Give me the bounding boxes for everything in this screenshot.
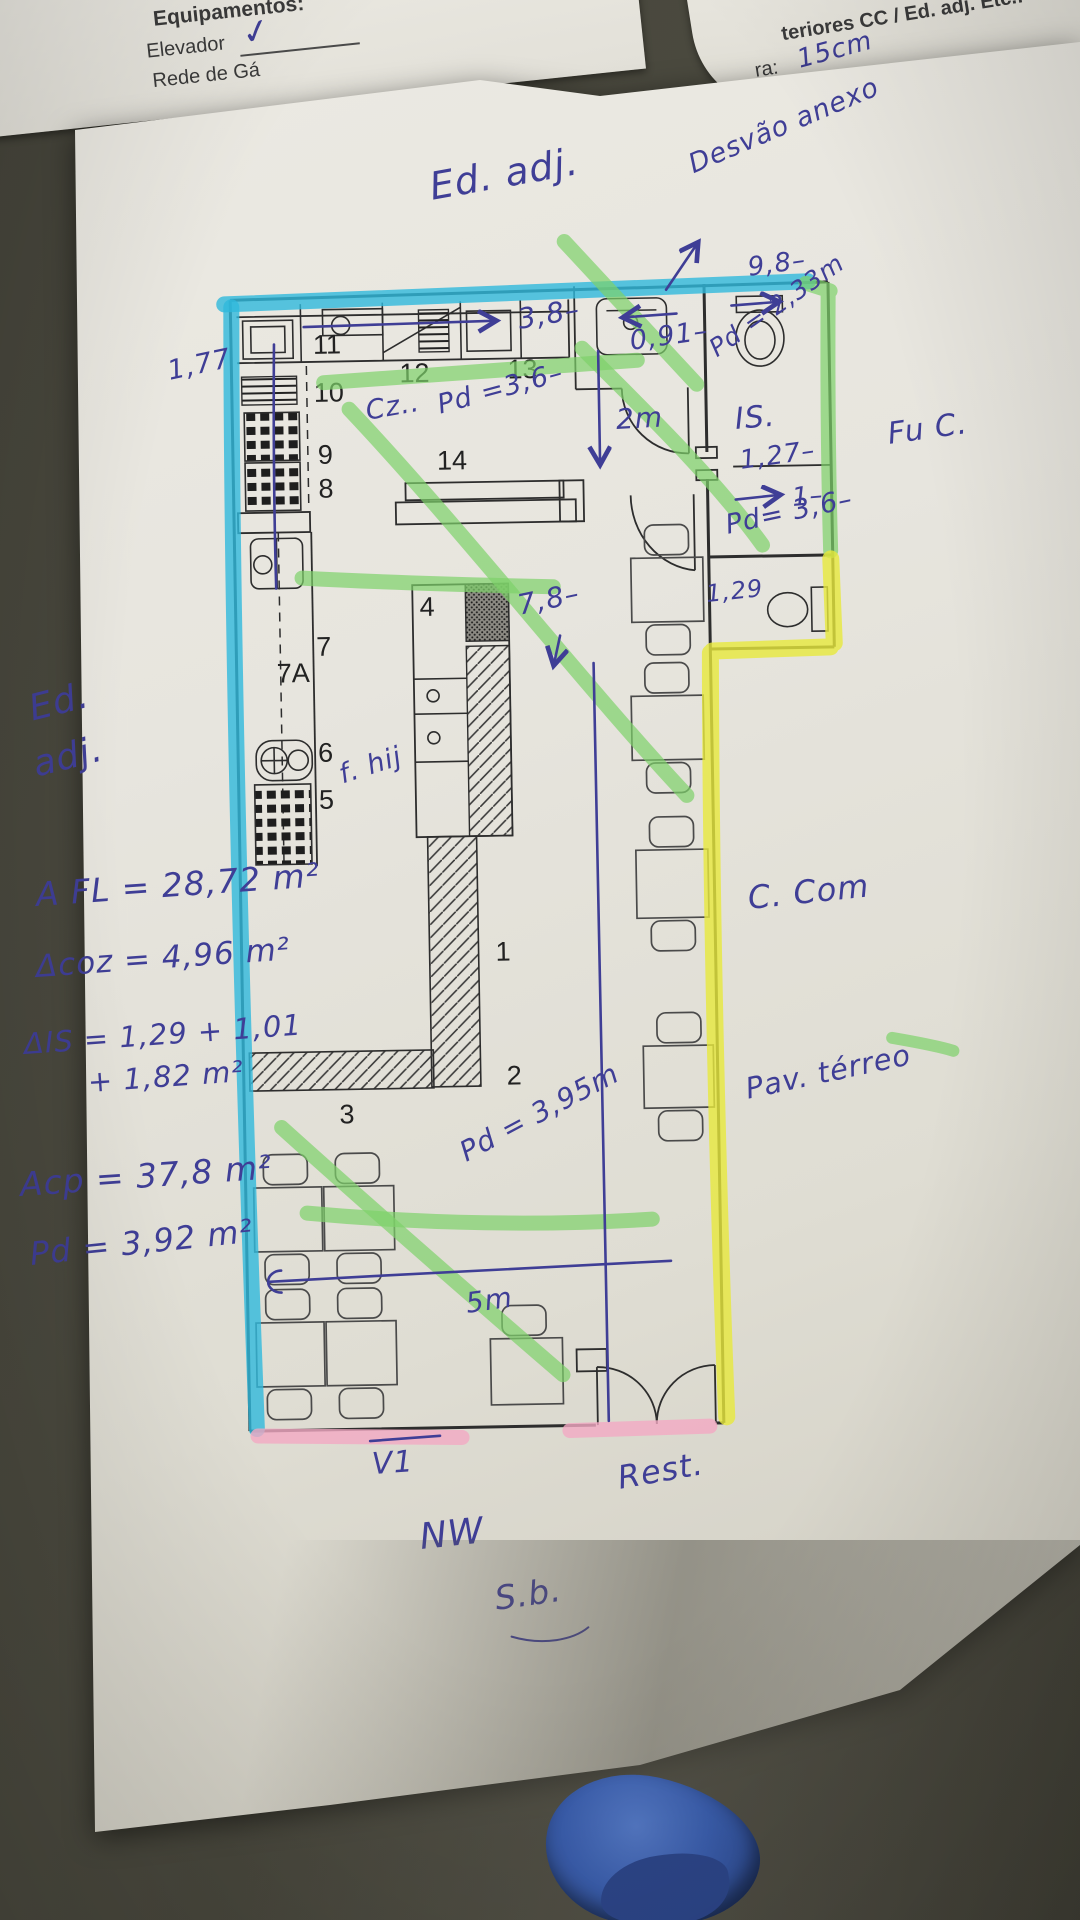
room-label-3: 3	[339, 1099, 355, 1129]
annotation-v1: V1	[371, 1447, 415, 1480]
room-label-2: 2	[506, 1060, 522, 1090]
doors	[560, 387, 716, 1425]
photo-of-annotated-floor-plan: 25 cm Equipamentos: Elevador ✓ Rede de G…	[0, 0, 1080, 1920]
pen-dimension-line-horizontal	[269, 1261, 671, 1282]
room-label-4: 4	[419, 592, 435, 622]
room-label-1: 1	[495, 937, 511, 967]
room-label-5: 5	[319, 785, 335, 815]
floor-background	[0, 1540, 1080, 1920]
yellow-right-wall	[707, 559, 848, 1417]
fridge-vent	[242, 376, 297, 405]
grille-appliance	[255, 784, 312, 865]
room-label-6: 6	[318, 738, 334, 768]
room-label-7a: 7A	[276, 658, 310, 689]
counter-hatched-vertical	[428, 836, 481, 1087]
counter-hatched-horizontal	[249, 1050, 434, 1091]
bar-hatched-strip	[466, 646, 512, 837]
toilet-small	[767, 592, 808, 627]
room-label-9: 9	[318, 440, 334, 470]
room-label-14: 14	[437, 445, 468, 476]
room-label-8: 8	[318, 474, 334, 504]
annotation-is: IS.	[734, 402, 777, 435]
appliance-rack	[244, 412, 300, 461]
annotation-1-29: 1,29	[705, 576, 765, 606]
annotation-2m: 2m	[615, 404, 663, 434]
annotation-5m: 5m	[464, 1284, 515, 1318]
room-label-7: 7	[316, 632, 332, 662]
dishwasher	[418, 310, 449, 353]
pen-dimension-line-vertical	[594, 663, 609, 1421]
pink-bottom-wall	[570, 1426, 710, 1430]
room-label-11: 11	[313, 329, 342, 359]
cyan-top-wall	[224, 281, 808, 304]
green-stroke	[307, 1207, 652, 1227]
highlighter-marks	[223, 235, 960, 1441]
